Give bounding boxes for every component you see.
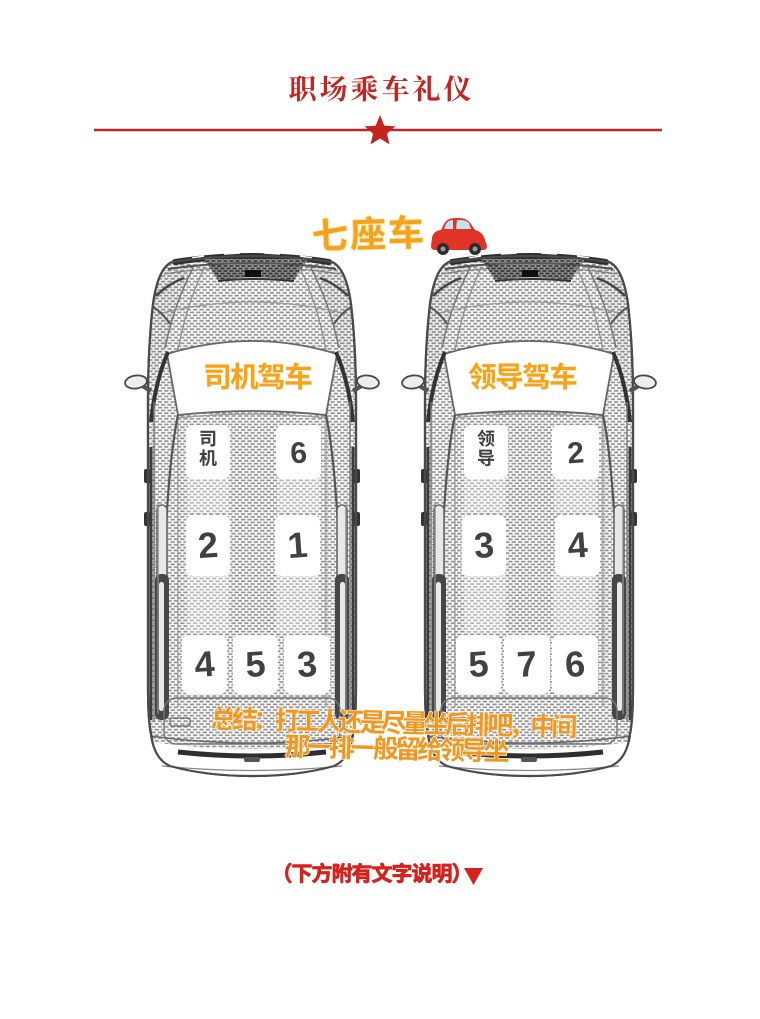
svg-text:6: 6 [564,643,587,685]
svg-text:2: 2 [197,524,220,566]
svg-text:7: 7 [516,643,539,685]
svg-text:3: 3 [296,643,319,685]
svg-text:5: 5 [467,643,490,685]
svg-text:4: 4 [193,643,216,685]
svg-text:3: 3 [473,524,496,566]
svg-text:2: 2 [566,436,585,470]
svg-text:4: 4 [566,524,589,566]
svg-text:5: 5 [244,643,267,685]
svg-text:1: 1 [286,524,309,566]
svg-text:6: 6 [289,436,308,470]
